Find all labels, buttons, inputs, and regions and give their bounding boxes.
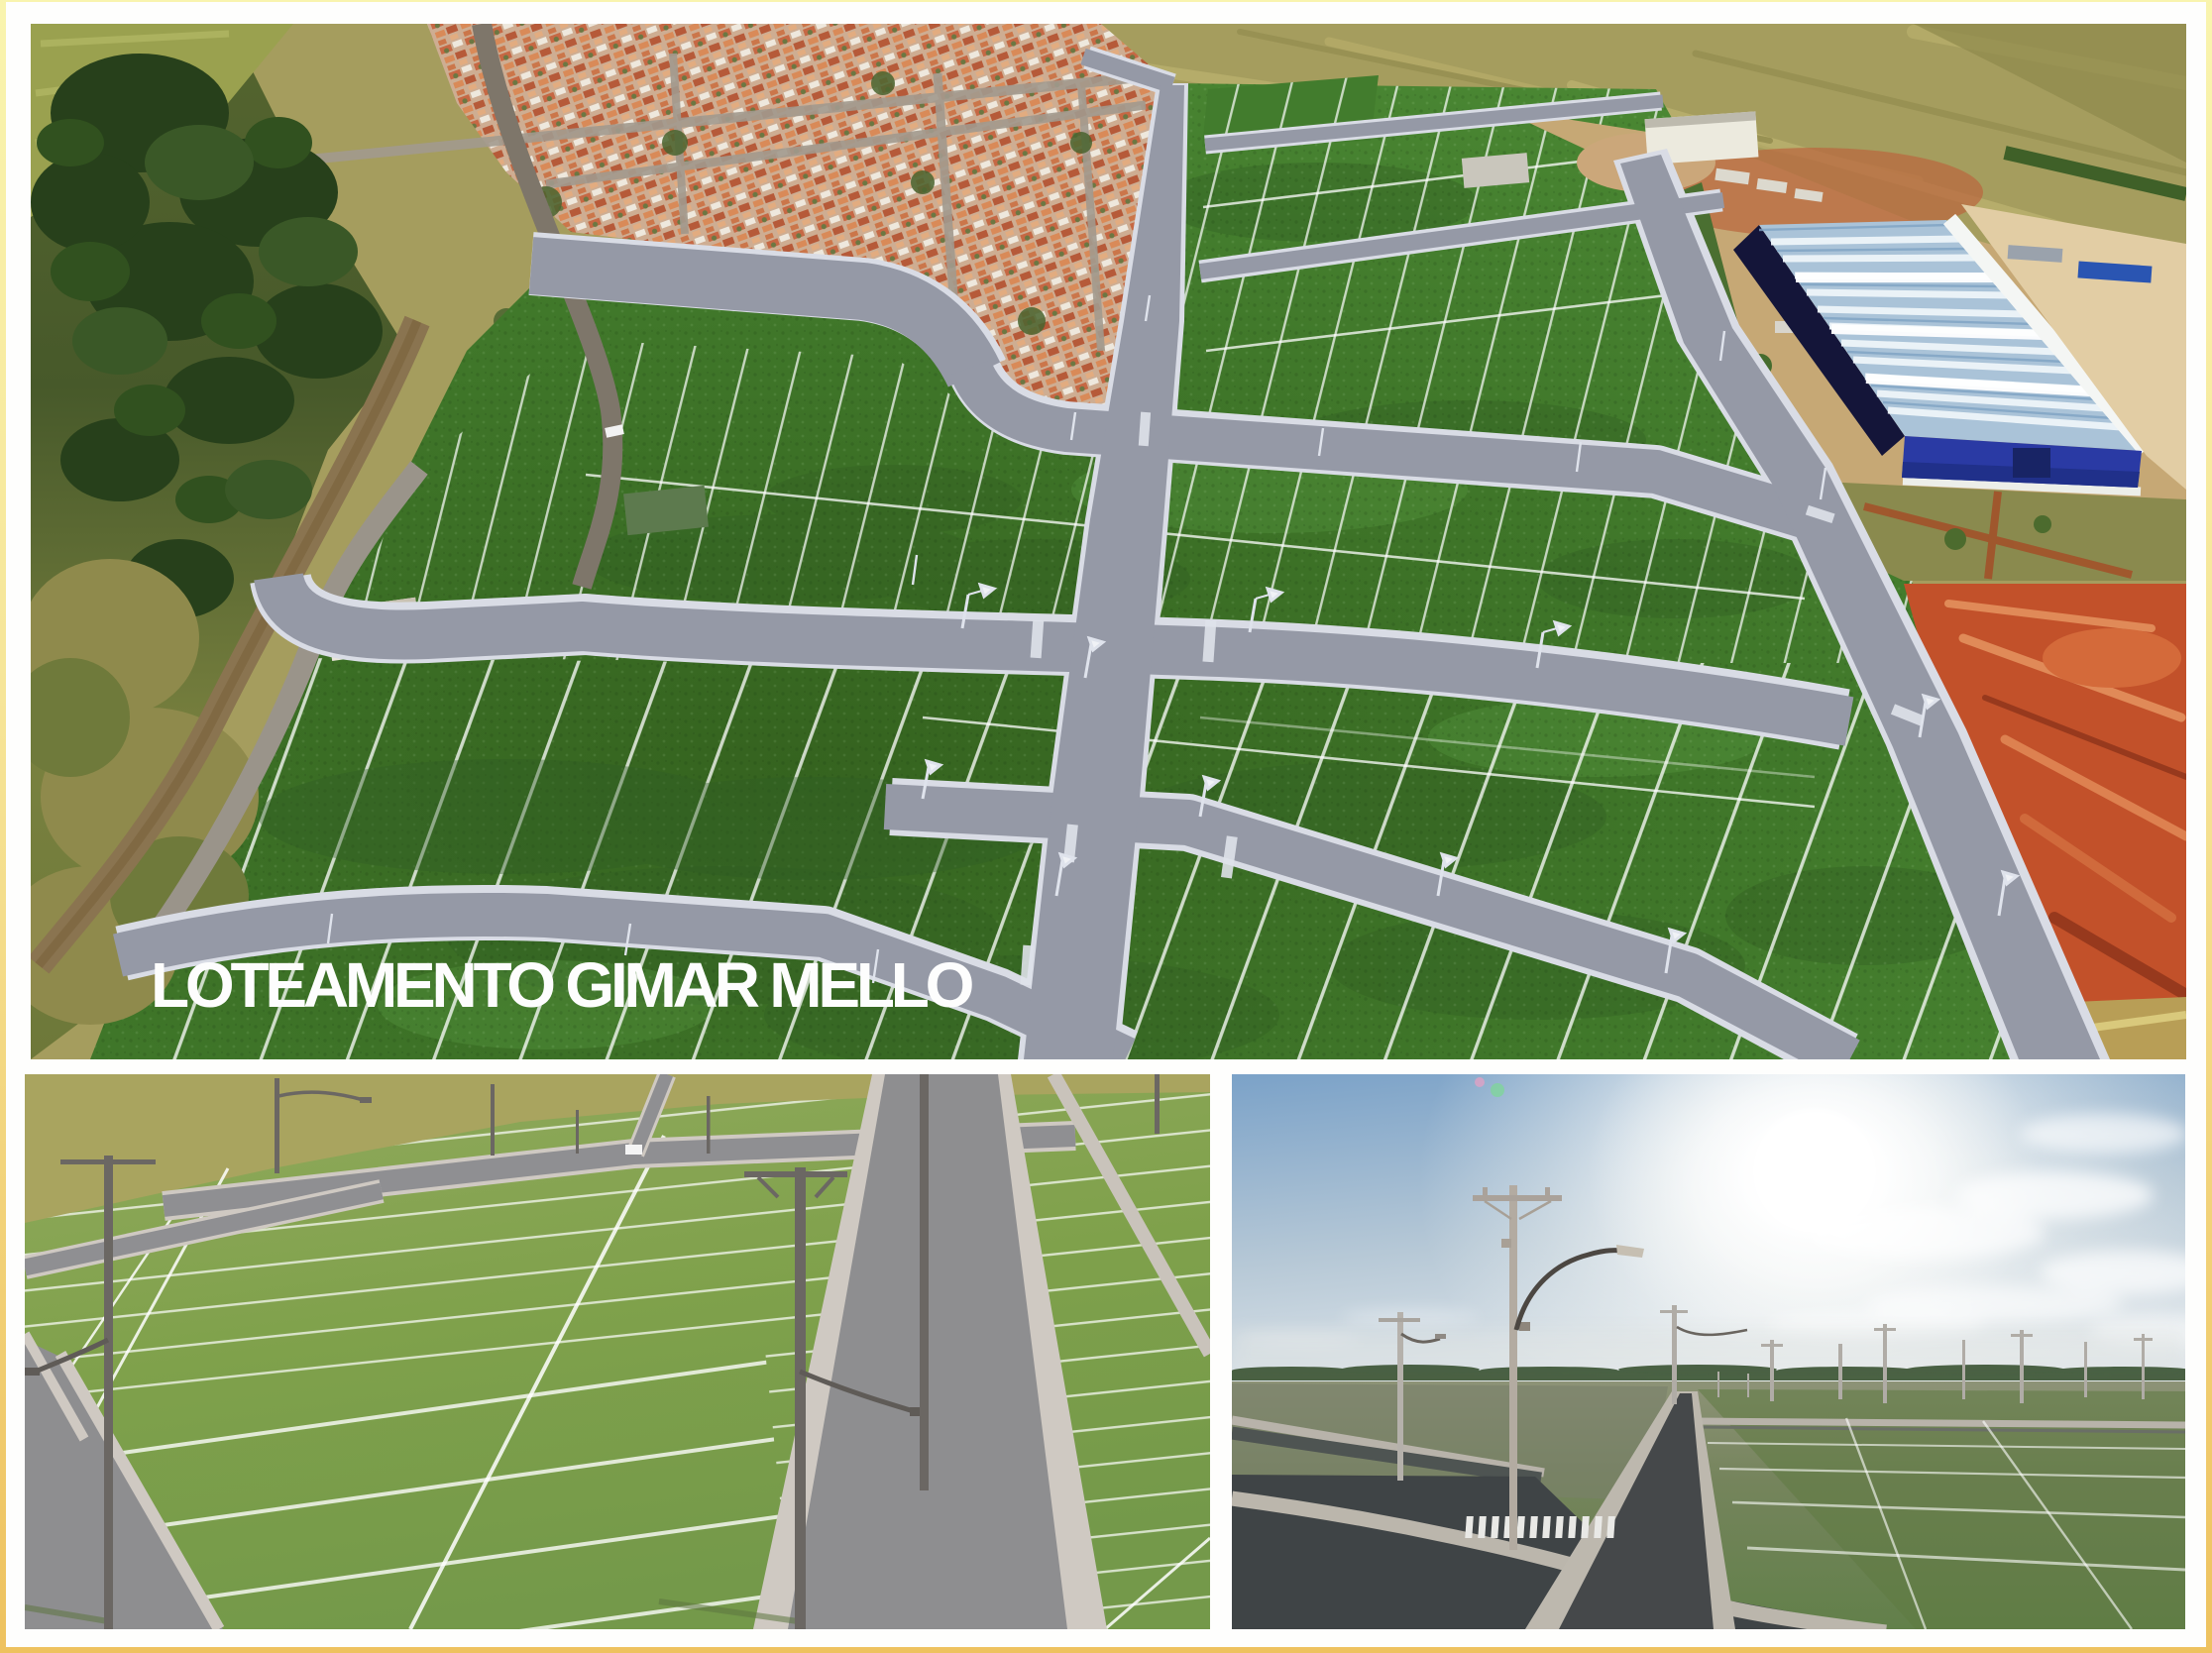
svg-text:LOTEAMENTO GIMAR MELLO: LOTEAMENTO GIMAR MELLO (151, 949, 973, 1021)
